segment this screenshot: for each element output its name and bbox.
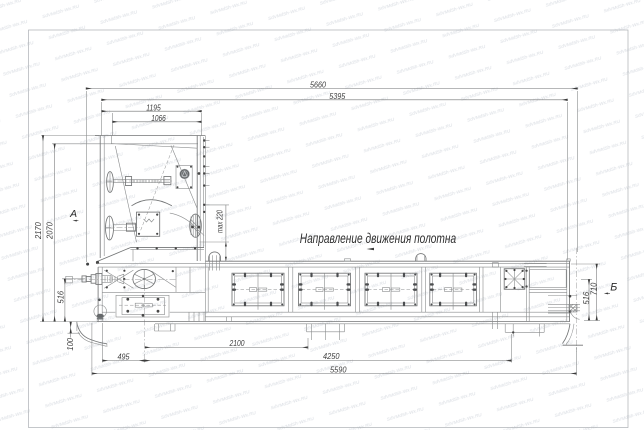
svg-text:1195: 1195 (146, 102, 161, 112)
svg-text:516: 516 (56, 291, 66, 304)
svg-text:max 220: max 220 (215, 210, 225, 233)
svg-text:2170: 2170 (33, 222, 43, 240)
svg-text:5395: 5395 (329, 91, 345, 101)
svg-text:5590: 5590 (330, 364, 347, 374)
svg-text:А: А (69, 209, 77, 220)
svg-text:4250: 4250 (323, 351, 340, 361)
svg-text:Направление движения полотна: Направление движения полотна (300, 231, 457, 246)
svg-text:100: 100 (65, 338, 75, 351)
svg-text:5660: 5660 (310, 80, 326, 90)
svg-text:2070: 2070 (44, 222, 54, 240)
svg-text:1066: 1066 (151, 113, 166, 123)
svg-text:516: 516 (581, 292, 591, 305)
svg-text:495: 495 (118, 351, 130, 361)
svg-text:Б: Б (610, 282, 617, 294)
svg-text:2100: 2100 (229, 338, 245, 348)
